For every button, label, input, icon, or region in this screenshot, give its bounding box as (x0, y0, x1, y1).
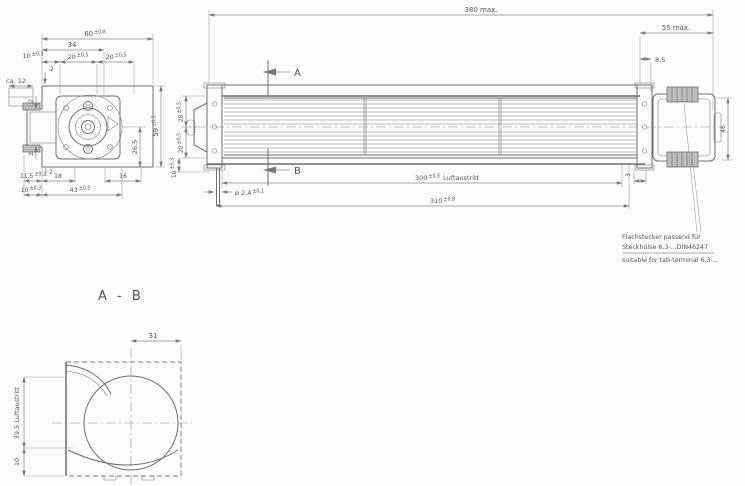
section-marker-a: A (263, 60, 301, 97)
dim-18: 18 (54, 173, 62, 180)
impeller-disc-1 (364, 98, 366, 155)
note-line-2: Steckhülse 6,3-...DIN46247 (622, 244, 708, 251)
dim-ca12: ca. 12 (6, 77, 26, 85)
dim-8-5: 8,5 (655, 56, 665, 64)
dim-20-right: 20±0,5 (106, 53, 127, 62)
side-view: 380 max. 55 max. 8,5 20±0,5 20±0,5 10±0,… (170, 6, 733, 264)
shaft-rod (216, 168, 220, 205)
dim-3: 3 (625, 173, 632, 177)
dim-16: 16 (119, 173, 127, 180)
dim-20-upper: 20±0,5 (177, 102, 186, 122)
side-view-geometry (186, 83, 722, 205)
impeller-disc-2 (499, 98, 501, 155)
impeller-blades (224, 100, 637, 152)
dim-26-5: 26,5 (131, 140, 139, 154)
dim-60: 60±0,8 (84, 30, 106, 39)
fan-drawing: 60±0,8 34 10±0,3 20±0,5 20±0,5 2 ca. 12 … (0, 0, 745, 486)
side-view-dimensions: 380 max. 55 max. 8,5 20±0,5 20±0,5 10±0,… (170, 6, 733, 209)
marker-a-label: A (294, 68, 301, 79)
section-view-dimensions: 31 39,5 Luftaustritt 10 (13, 332, 181, 476)
dim-10-section: 10 (13, 458, 21, 466)
note-line-3: suitable for tab-terminal 6,3-... (622, 257, 719, 264)
dim-2-lower: 2 (28, 152, 35, 156)
front-view: 60±0,8 34 10±0,3 20±0,5 20±0,5 2 ca. 12 … (6, 30, 165, 200)
inlet-vane (66, 365, 111, 394)
technical-drawing-page: 60±0,8 34 10±0,3 20±0,5 20±0,5 2 ca. 12 … (0, 0, 745, 486)
dim-10-top: 10±0,3 (23, 52, 44, 61)
dim-39-5-luftaustritt: 39,5 Luftaustritt (13, 386, 21, 439)
section-view-geometry (52, 348, 192, 484)
terminal-tab-upper-front (23, 103, 40, 110)
dim-34: 34 (68, 41, 77, 49)
dim-310: 310±0,8 (430, 197, 455, 206)
dim-2-bottom: 2 (49, 169, 53, 176)
dim-43: 43±0,5 (70, 186, 91, 195)
dim-31: 31 (149, 332, 158, 340)
dim-20-lower: 20±0,5 (177, 133, 186, 153)
dim-46: 46 (720, 125, 727, 133)
section-title: A - B (98, 289, 144, 304)
dim-20-left: 20±0,5 (68, 53, 89, 62)
marker-b-label: B (294, 166, 301, 177)
dim-shaft-diameter: ø 2,4±0,1 (235, 189, 264, 198)
section-view: A - B 31 39,5 Luftaustritt 10 (13, 289, 192, 484)
outlet-vane (68, 450, 178, 465)
dim-2-upper: 2 (28, 99, 35, 103)
dim-10-bottom: 10±0,3 (21, 186, 41, 195)
note-line-1: Flachstecker passend für (622, 234, 701, 241)
dim-59: 59±0,5 (152, 115, 161, 137)
terminal-tab-lower-front (23, 145, 40, 152)
dim-55-max: 55 max. (662, 24, 691, 32)
bearing-housing (194, 103, 207, 152)
dim-2-top: 2 (50, 66, 54, 73)
terminal-block-lower (667, 152, 698, 167)
dim-10: 10±0,3 (170, 158, 179, 178)
dim-300-luftaustritt: 300±0,5 Luftaustritt (415, 174, 480, 183)
dim-380-max: 380 max. (464, 6, 497, 14)
terminal-block-upper (667, 87, 698, 102)
